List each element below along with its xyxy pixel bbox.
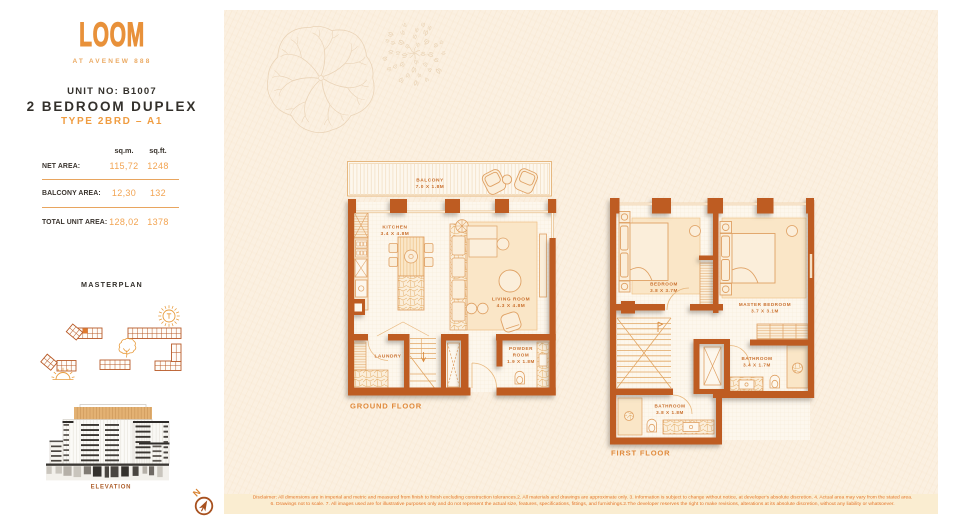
svg-text:4.3 X 4.8M: 4.3 X 4.8M bbox=[497, 303, 526, 309]
svg-text:7.0 X 1.8M: 7.0 X 1.8M bbox=[416, 184, 445, 190]
svg-text:MASTER BEDROOM: MASTER BEDROOM bbox=[739, 302, 791, 307]
svg-text:ROOM: ROOM bbox=[513, 352, 530, 357]
svg-text:BATHROOM: BATHROOM bbox=[741, 356, 772, 361]
svg-text:3.4 X 1.7M: 3.4 X 1.7M bbox=[743, 362, 771, 367]
svg-text:1.9 X 1.8M: 1.9 X 1.8M bbox=[507, 359, 535, 364]
svg-text:LIVING ROOM: LIVING ROOM bbox=[492, 297, 530, 303]
svg-text:3.7 X 3.1M: 3.7 X 3.1M bbox=[751, 308, 779, 313]
svg-text:ELEVATION: ELEVATION bbox=[91, 485, 132, 491]
svg-text:BATHROOM: BATHROOM bbox=[654, 404, 685, 409]
svg-text:3.8 X 3.7M: 3.8 X 3.7M bbox=[650, 288, 678, 293]
svg-text:BALCONY: BALCONY bbox=[416, 178, 444, 184]
svg-text:GROUND FLOOR: GROUND FLOOR bbox=[350, 402, 422, 411]
svg-text:LAUNDRY: LAUNDRY bbox=[374, 354, 401, 360]
svg-text:BEDROOM: BEDROOM bbox=[650, 282, 678, 287]
svg-text:POWDER: POWDER bbox=[509, 346, 533, 351]
svg-text:3.8 X 1.8M: 3.8 X 1.8M bbox=[656, 410, 684, 415]
svg-text:KITCHEN: KITCHEN bbox=[382, 225, 407, 231]
svg-text:FIRST FLOOR: FIRST FLOOR bbox=[611, 449, 670, 458]
svg-text:3.4 X 4.8M: 3.4 X 4.8M bbox=[381, 231, 410, 237]
